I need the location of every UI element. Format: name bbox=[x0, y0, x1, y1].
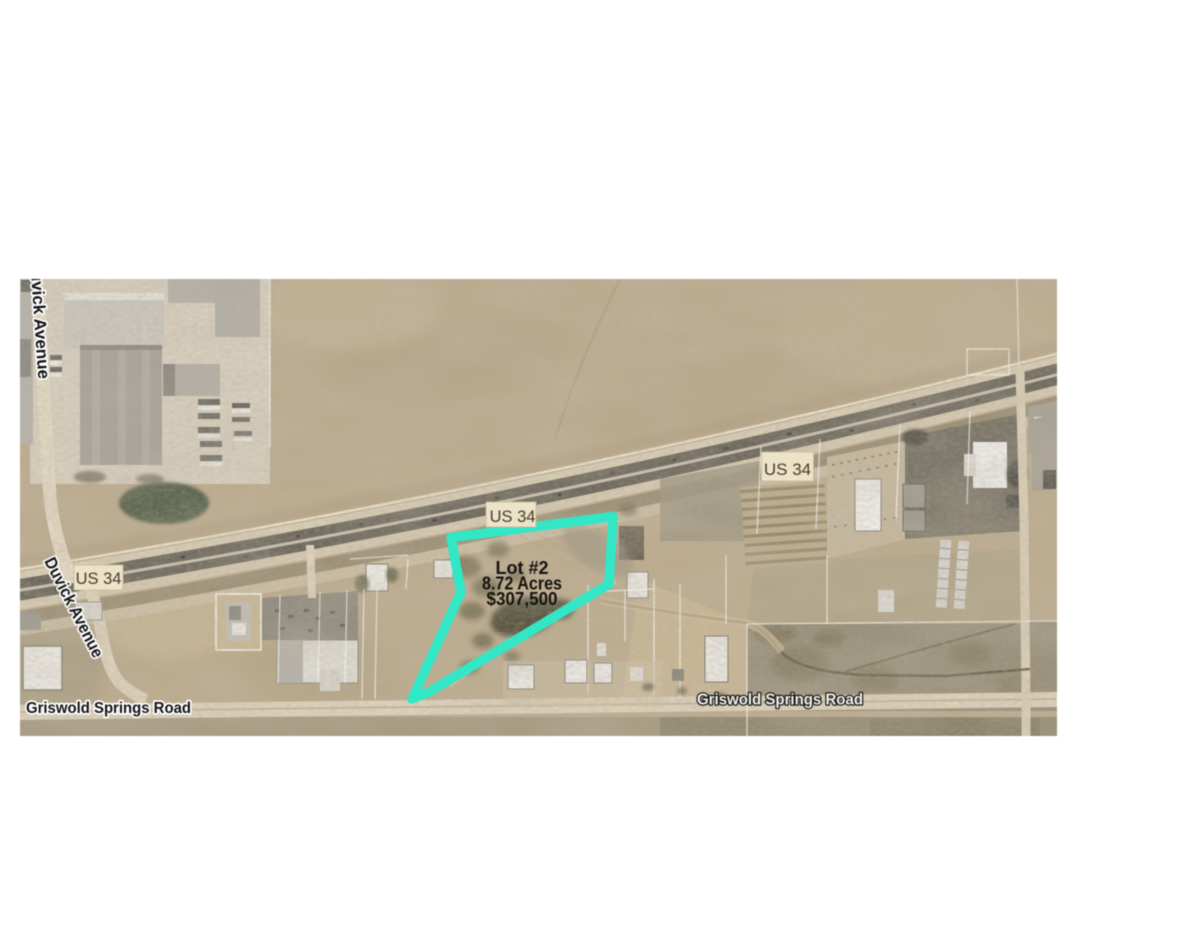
svg-text:US 34: US 34 bbox=[490, 508, 536, 526]
svg-text:Griswold Springs Road: Griswold Springs Road bbox=[697, 692, 863, 709]
svg-text:US 34: US 34 bbox=[764, 460, 811, 479]
svg-text:Griswold Springs Road: Griswold Springs Road bbox=[26, 700, 191, 717]
svg-text:$307,500: $307,500 bbox=[487, 589, 558, 609]
svg-text:US 34: US 34 bbox=[76, 570, 122, 588]
